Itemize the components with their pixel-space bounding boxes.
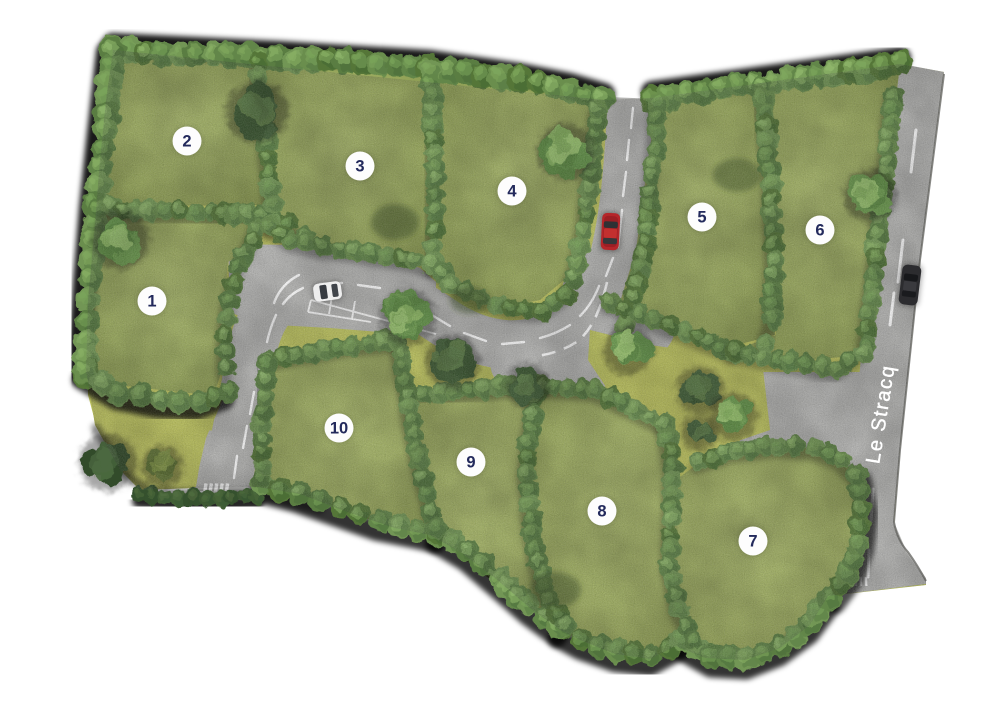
svg-text:9: 9 — [466, 454, 475, 472]
svg-text:1: 1 — [147, 293, 156, 311]
svg-text:10: 10 — [330, 420, 348, 438]
svg-text:8: 8 — [597, 503, 606, 521]
svg-text:5: 5 — [697, 209, 706, 227]
svg-text:3: 3 — [355, 158, 364, 176]
svg-text:7: 7 — [748, 533, 757, 551]
svg-text:2: 2 — [182, 133, 191, 151]
svg-text:6: 6 — [815, 222, 824, 240]
svg-text:4: 4 — [507, 183, 517, 201]
